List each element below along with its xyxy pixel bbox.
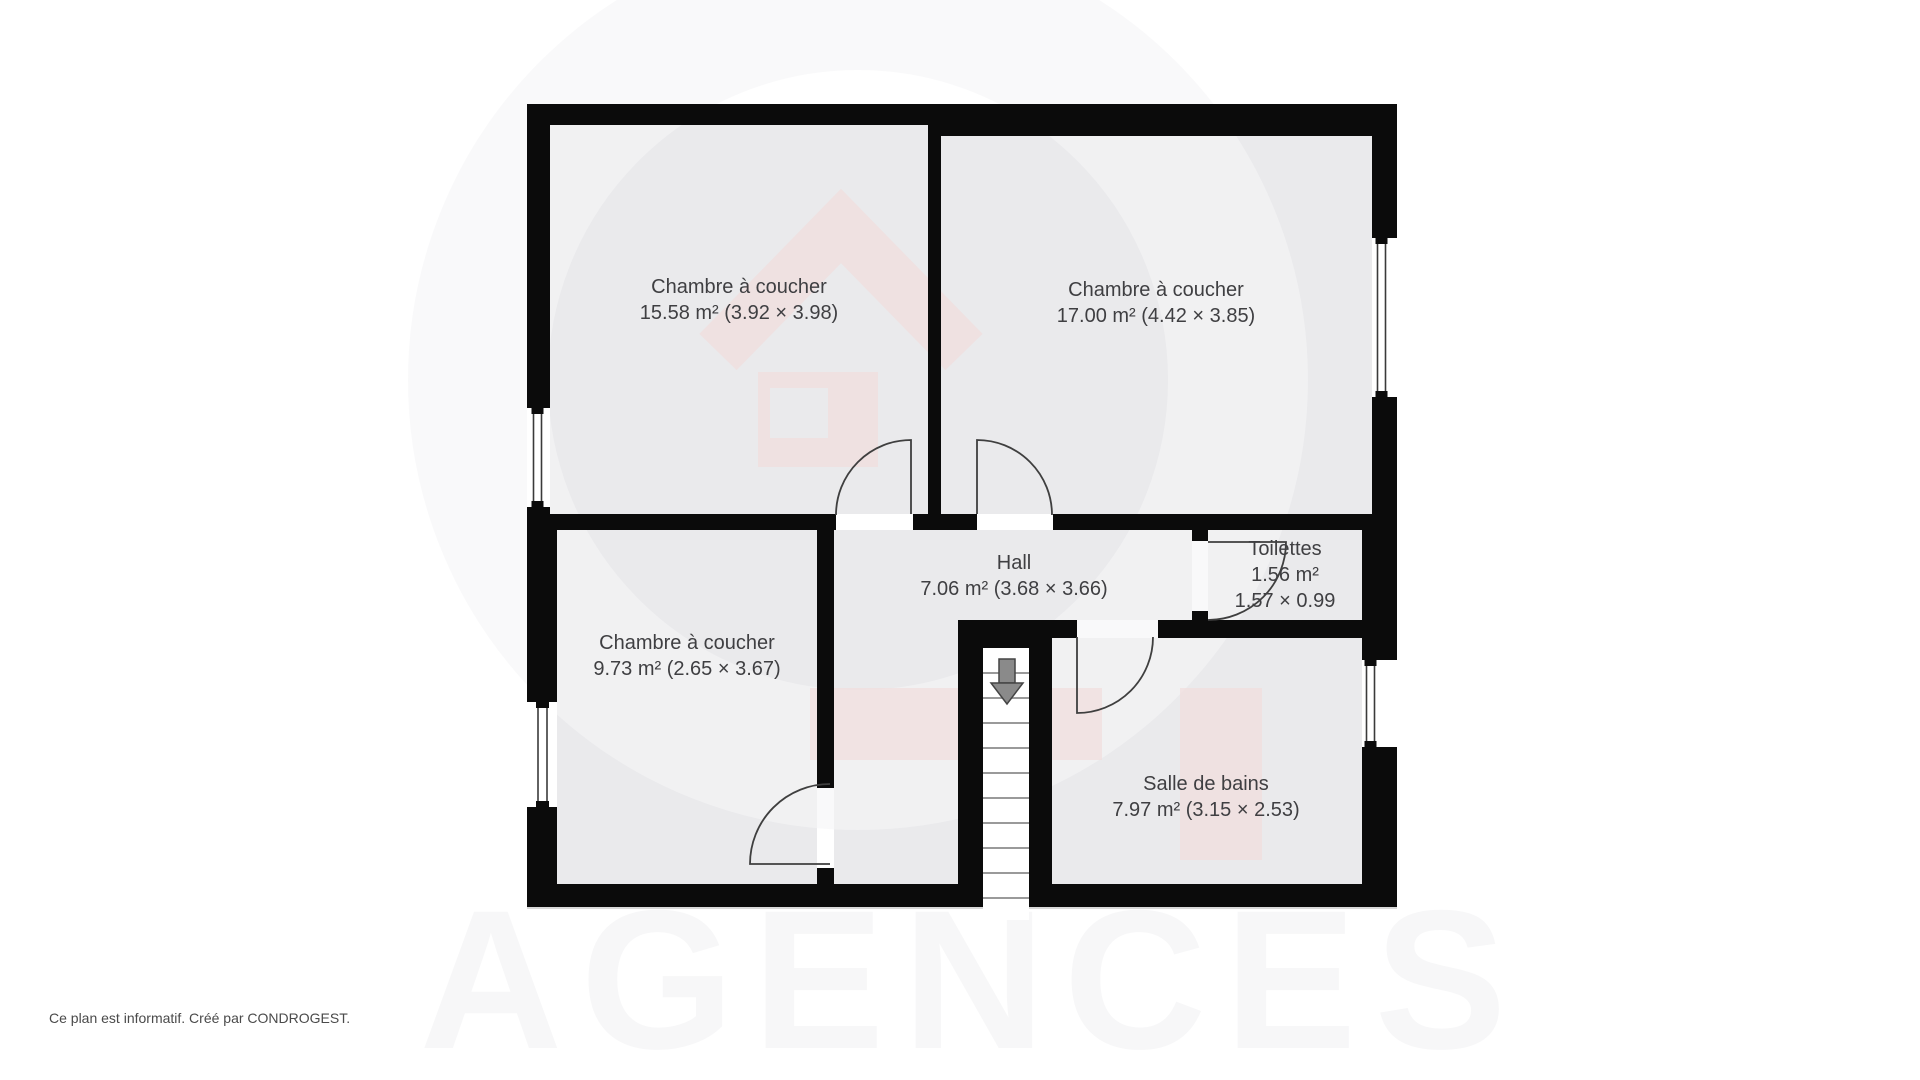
floorplan-page: AGENCES Chambre à coucher15.58 m² (3.92 … [0,0,1920,1080]
wall [1192,530,1208,541]
room-label-line: Chambre à coucher [640,274,838,300]
staircase [983,648,1029,920]
wall-shadow-line [527,907,1397,909]
window-sill-stub [1376,391,1388,397]
window-sill-stub [536,702,549,708]
room-label-salle-de-bains: Salle de bains7.97 m² (3.15 × 2.53) [1112,771,1299,823]
room-label-line: Salle de bains [1112,771,1299,797]
wall [1192,611,1208,621]
room-label-line: Chambre à coucher [1057,277,1255,303]
window-sill-stub [536,801,549,807]
room-label-line: 17.00 m² (4.42 × 3.85) [1057,303,1255,329]
window-sill-stub [532,408,544,414]
room-label-toilettes: Toilettes1.56 m²1.57 × 0.99 [1235,536,1336,614]
room-label-line: 7.06 m² (3.68 × 3.66) [920,576,1107,602]
window-sill-stub [532,501,544,507]
footer-disclaimer: Ce plan est informatif. Créé par CONDROG… [49,1010,350,1026]
wall [928,104,941,526]
room-label-bedroom-top-left: Chambre à coucher15.58 m² (3.92 × 3.98) [640,274,838,326]
window-sill-stub [1365,660,1377,666]
logo-house-block [810,688,1102,760]
room-label-line: 1.57 × 0.99 [1235,588,1336,614]
wall [817,868,834,884]
window-sill-stub [1376,238,1388,244]
stair-direction-arrow-stem [999,659,1015,683]
wall [1052,620,1077,638]
wall [527,514,836,530]
room-label-hall: Hall7.06 m² (3.68 × 3.66) [920,550,1107,602]
wall [941,104,1397,136]
window-sill-stub [1365,741,1377,747]
window-opening [527,702,557,807]
room-label-bedroom-top-right: Chambre à coucher17.00 m² (4.42 × 3.85) [1057,277,1255,329]
window-opening [527,408,550,507]
room-label-line: 1.56 m² [1235,562,1336,588]
wall [1053,514,1397,530]
room-label-line: 9.73 m² (2.65 × 3.67) [593,656,780,682]
wall [958,620,983,907]
wall [817,530,834,788]
room-label-line: Chambre à coucher [593,630,780,656]
wall [527,104,941,125]
room-label-bedroom-bottom-left: Chambre à coucher9.73 m² (2.65 × 3.67) [593,630,780,682]
wall [913,514,977,530]
floorplan-drawing: AGENCES [0,0,1920,1080]
room-label-line: 15.58 m² (3.92 × 3.98) [640,300,838,326]
room-label-line: Toilettes [1235,536,1336,562]
window-opening [1372,238,1397,397]
wall [1029,648,1052,884]
room-label-line: Hall [920,550,1107,576]
logo-house-block-hole [770,388,828,438]
room-label-line: 7.97 m² (3.15 × 2.53) [1112,797,1299,823]
wall [1158,620,1397,638]
